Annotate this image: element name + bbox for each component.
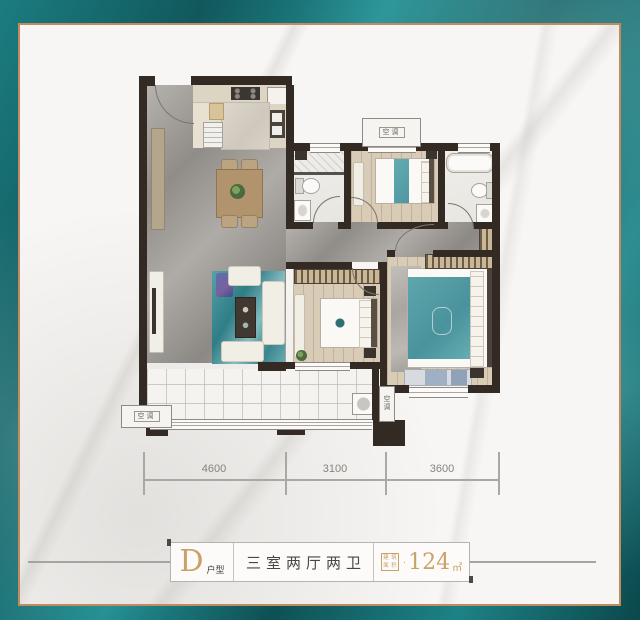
stamp-char: 积 [391, 563, 396, 569]
shower-fixture-icon [295, 151, 307, 160]
wall-segment [139, 76, 155, 86]
dimension-tick [498, 452, 500, 495]
stamp-char: 建 [383, 555, 388, 561]
kitchen-sink-icon [269, 110, 285, 138]
wall-segment [473, 222, 500, 229]
bathroom-sink-icon [294, 200, 311, 221]
area-unit: ㎡ [452, 559, 462, 574]
plant-icon [230, 184, 245, 199]
floor-plan: 空调 空调 空 调 4600 3100 3600 [0, 0, 640, 620]
kitchen-island [221, 102, 270, 150]
wall-segment [380, 262, 387, 388]
stamp-char: 面 [383, 563, 388, 569]
shower-glass-partition [293, 172, 344, 175]
tv-icon [152, 288, 156, 334]
wall-segment [373, 420, 405, 446]
kitchen-small-appliance [209, 103, 224, 120]
wall-segment [433, 250, 500, 257]
dining-chair [221, 215, 238, 228]
ac-label-char: 调 [384, 404, 391, 412]
ac-label-char: 空 [384, 396, 391, 404]
dimension-tick [143, 452, 145, 495]
sofa [262, 281, 285, 345]
ac-platform: 空调 [121, 405, 172, 428]
balcony-floor [147, 369, 374, 423]
wall-segment [191, 76, 292, 85]
plan-caption: D 户型 三室两厅两卫 建筑面积 · 124 ㎡ [170, 542, 470, 582]
dimension-baseline [143, 479, 500, 481]
bay-window-bench [404, 369, 472, 386]
window [458, 143, 490, 153]
nightstand [470, 368, 484, 378]
entry-console [151, 128, 165, 230]
wall-segment [139, 86, 147, 427]
wall-segment [350, 362, 387, 369]
bedroom2-tv-icon [426, 150, 437, 159]
nightstand [364, 348, 376, 358]
dishwasher-icon [203, 122, 223, 148]
bedroom2-bed [375, 158, 435, 204]
dimension-tick [285, 452, 287, 495]
bay-window [409, 387, 468, 398]
wall-segment [286, 85, 294, 228]
armchair [228, 266, 261, 286]
unit-type-letter: D [179, 547, 203, 577]
dimension-tick [385, 452, 387, 495]
ac-label: 空调 [134, 411, 160, 422]
area-stamp: 建筑面积 [381, 553, 399, 571]
wall-segment [344, 150, 351, 228]
dining-chair [241, 215, 258, 228]
dimension-label: 3600 [412, 463, 472, 475]
sofa [221, 341, 264, 362]
wall-segment [286, 262, 352, 269]
unit-type-block: D 户型 [171, 543, 233, 581]
coffee-table [235, 297, 256, 338]
wall-segment [438, 150, 445, 228]
poster-background: 空调 空调 空 调 4600 3100 3600 D 户型 [0, 0, 640, 620]
toilet-icon [302, 178, 320, 194]
window [295, 362, 350, 371]
caption-corner-mark [469, 576, 473, 583]
wall-segment [387, 250, 395, 257]
ac-platform-vertical: 空 调 [379, 386, 395, 422]
ac-platform: 空调 [362, 118, 421, 147]
area-dot: · [403, 557, 406, 568]
bedroom3-console [294, 294, 305, 358]
wall-segment [286, 222, 313, 229]
dimension-label: 3100 [305, 463, 365, 475]
window [310, 143, 340, 153]
dimension-label: 4600 [184, 463, 244, 475]
rooms-block: 三室两厅两卫 [234, 543, 373, 581]
wall-segment [372, 368, 379, 420]
balcony-glass-wall [150, 419, 372, 430]
wall-segment [492, 143, 500, 393]
master-bed [407, 268, 493, 368]
ac-label: 空调 [379, 127, 405, 138]
stamp-char: 筑 [391, 555, 396, 561]
area-value: 124 [408, 550, 450, 575]
bedroom3-bed [320, 298, 378, 348]
wall-segment [468, 385, 500, 393]
rooms-label: 三室两厅两卫 [246, 552, 366, 573]
plant-icon [296, 350, 307, 361]
unit-type-label: 户型 [207, 563, 225, 576]
bathtub-icon [446, 153, 494, 173]
wall-segment [338, 222, 351, 229]
wall-segment [258, 362, 286, 371]
caption-corner-mark [167, 539, 171, 546]
wall-segment [286, 362, 295, 369]
stove-icon [231, 87, 260, 100]
area-block: 建筑面积 · 124 ㎡ [374, 543, 469, 581]
